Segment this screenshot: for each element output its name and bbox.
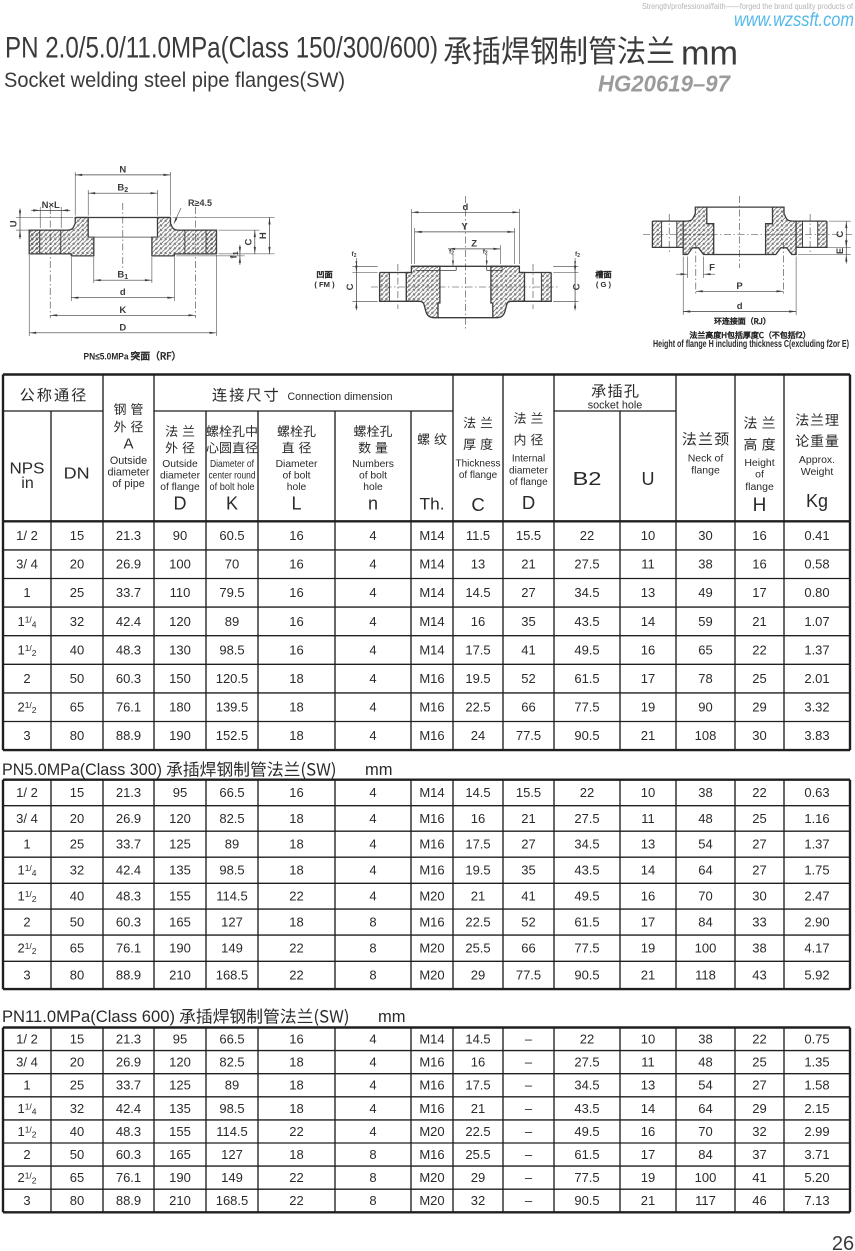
svg-text:4: 4 <box>369 1078 376 1093</box>
svg-text:5.92: 5.92 <box>804 968 829 983</box>
svg-text:90: 90 <box>698 700 712 715</box>
svg-text:25: 25 <box>70 1078 84 1093</box>
svg-text:26.9: 26.9 <box>116 1055 141 1070</box>
svg-text:1/ 2: 1/ 2 <box>16 528 38 543</box>
svg-text:center round: center round <box>209 471 256 482</box>
svg-text:K: K <box>119 305 126 316</box>
svg-text:22: 22 <box>289 1170 303 1185</box>
svg-text:14: 14 <box>641 863 655 878</box>
svg-text:22.5: 22.5 <box>465 1124 490 1139</box>
svg-text:29: 29 <box>752 700 766 715</box>
svg-text:4: 4 <box>369 557 376 572</box>
svg-text:14.5: 14.5 <box>465 785 490 800</box>
svg-text:125: 125 <box>169 1078 191 1093</box>
svg-text:19: 19 <box>641 941 655 956</box>
svg-text:17: 17 <box>641 915 655 930</box>
svg-text:2.01: 2.01 <box>804 671 829 686</box>
svg-text:DN: DN <box>64 466 90 483</box>
svg-text:M20: M20 <box>419 941 444 956</box>
svg-text:d: d <box>120 287 126 298</box>
svg-text:22: 22 <box>752 642 766 657</box>
svg-text:98.5: 98.5 <box>219 642 244 657</box>
svg-text:C: C <box>243 238 254 245</box>
svg-text:4: 4 <box>369 837 376 852</box>
svg-text:25: 25 <box>70 837 84 852</box>
svg-text:hole: hole <box>363 482 383 493</box>
svg-text:25: 25 <box>752 671 766 686</box>
svg-text:149: 149 <box>221 941 243 956</box>
svg-text:mm: mm <box>681 35 738 73</box>
svg-text:4: 4 <box>369 811 376 826</box>
svg-text:K: K <box>226 494 238 514</box>
svg-text:16: 16 <box>752 528 766 543</box>
svg-text:78: 78 <box>698 671 712 686</box>
svg-text:flange: flange <box>691 465 720 477</box>
svg-text:40: 40 <box>70 642 84 657</box>
svg-text:90.5: 90.5 <box>574 968 599 983</box>
svg-text:33.7: 33.7 <box>116 585 141 600</box>
svg-text:of flange: of flange <box>509 477 548 488</box>
svg-text:1/ 2: 1/ 2 <box>16 785 38 800</box>
svg-text:27: 27 <box>521 837 535 852</box>
svg-text:35: 35 <box>521 863 535 878</box>
svg-text:21.3: 21.3 <box>116 1032 141 1047</box>
svg-text:50: 50 <box>70 915 84 930</box>
svg-text:1.07: 1.07 <box>804 614 829 629</box>
svg-text:A: A <box>123 436 133 453</box>
svg-text:( FM ): ( FM ) <box>314 280 335 289</box>
svg-text:8: 8 <box>369 1170 376 1185</box>
svg-text:B2: B2 <box>573 469 602 489</box>
svg-text:N: N <box>119 164 126 175</box>
svg-text:17.5: 17.5 <box>465 1078 490 1093</box>
svg-text:60.3: 60.3 <box>116 671 141 686</box>
svg-text:38: 38 <box>698 1032 712 1047</box>
svg-text:11: 11 <box>641 1055 655 1070</box>
svg-text:114.5: 114.5 <box>216 1124 248 1139</box>
svg-text:155: 155 <box>169 889 191 904</box>
svg-text:70: 70 <box>698 1124 712 1139</box>
svg-text:4: 4 <box>369 785 376 800</box>
svg-text:35: 35 <box>521 614 535 629</box>
svg-text:95: 95 <box>173 1032 187 1047</box>
svg-text:of bolt hole: of bolt hole <box>210 482 255 493</box>
svg-text:21: 21 <box>641 1193 655 1208</box>
svg-text:M20: M20 <box>419 968 444 983</box>
svg-text:Outside: Outside <box>110 455 147 467</box>
svg-text:Thickness: Thickness <box>455 459 500 470</box>
svg-text:52: 52 <box>521 671 535 686</box>
svg-text:Y: Y <box>461 221 468 232</box>
svg-text:33.7: 33.7 <box>116 837 141 852</box>
svg-text:C: C <box>345 283 356 290</box>
svg-text:4: 4 <box>369 1032 376 1047</box>
svg-text:120: 120 <box>169 811 191 826</box>
svg-text:34.5: 34.5 <box>574 1078 599 1093</box>
svg-text:M16: M16 <box>419 700 444 715</box>
svg-text:10: 10 <box>641 785 655 800</box>
svg-text:76.1: 76.1 <box>116 1170 141 1185</box>
svg-text:66.5: 66.5 <box>219 1032 244 1047</box>
svg-text:16: 16 <box>289 1032 303 1047</box>
svg-text:48.3: 48.3 <box>116 642 141 657</box>
svg-text:in: in <box>21 475 33 492</box>
svg-text:11: 11 <box>641 811 655 826</box>
svg-text:98.5: 98.5 <box>219 863 244 878</box>
svg-text:135: 135 <box>169 1101 191 1116</box>
svg-text:65: 65 <box>698 642 712 657</box>
svg-text:65: 65 <box>70 941 84 956</box>
svg-text:17.5: 17.5 <box>465 837 490 852</box>
svg-text:PN11.0MPa(Class 600): PN11.0MPa(Class 600) <box>2 1008 175 1026</box>
svg-text:29: 29 <box>471 1170 485 1185</box>
svg-text:22: 22 <box>289 1193 303 1208</box>
svg-text:–: – <box>525 1055 533 1070</box>
svg-text:32: 32 <box>70 1101 84 1116</box>
svg-text:Diameter of: Diameter of <box>210 459 254 470</box>
svg-text:17: 17 <box>641 671 655 686</box>
svg-text:16: 16 <box>641 642 655 657</box>
svg-text:118: 118 <box>695 968 716 983</box>
svg-text:64: 64 <box>698 1101 712 1116</box>
svg-text:25: 25 <box>70 585 84 600</box>
svg-text:21: 21 <box>521 557 535 572</box>
svg-text:18: 18 <box>289 837 303 852</box>
svg-text:27: 27 <box>752 837 766 852</box>
svg-text:4: 4 <box>369 1101 376 1116</box>
svg-text:168.5: 168.5 <box>216 1193 249 1208</box>
svg-text:13: 13 <box>471 557 485 572</box>
svg-text:f2: f2 <box>575 251 580 259</box>
svg-text:C: C <box>835 231 846 238</box>
svg-text:Height of flange H including t: Height of flange H including thickness C… <box>653 339 849 350</box>
svg-text:27.5: 27.5 <box>574 1055 599 1070</box>
svg-text:89: 89 <box>225 614 239 629</box>
svg-text:Height: Height <box>744 457 774 469</box>
svg-text:8: 8 <box>369 941 376 956</box>
svg-text:Kg: Kg <box>806 491 828 511</box>
svg-text:M20: M20 <box>419 1170 444 1185</box>
svg-text:25: 25 <box>752 1055 766 1070</box>
svg-text:M20: M20 <box>419 1124 444 1139</box>
svg-text:4: 4 <box>369 1124 376 1139</box>
svg-text:1: 1 <box>23 1078 30 1093</box>
svg-text:90.5: 90.5 <box>574 728 599 743</box>
svg-text:M16: M16 <box>419 728 444 743</box>
svg-text:120: 120 <box>169 614 191 629</box>
svg-text:21: 21 <box>752 614 766 629</box>
svg-text:32: 32 <box>70 614 84 629</box>
svg-text:15: 15 <box>70 1032 84 1047</box>
svg-text:7.13: 7.13 <box>804 1193 829 1208</box>
svg-text:25.5: 25.5 <box>465 1147 490 1162</box>
svg-text:M16: M16 <box>419 671 444 686</box>
svg-text:22: 22 <box>289 889 303 904</box>
svg-text:79.5: 79.5 <box>219 585 244 600</box>
svg-text:42.4: 42.4 <box>116 614 141 629</box>
svg-text:–: – <box>525 1193 533 1208</box>
svg-text:d: d <box>462 202 468 213</box>
svg-text:60.5: 60.5 <box>219 528 244 543</box>
svg-text:190: 190 <box>169 941 191 956</box>
svg-text:–: – <box>525 1101 533 1116</box>
svg-text:43.5: 43.5 <box>574 614 599 629</box>
svg-text:66: 66 <box>521 941 535 956</box>
svg-text:42.4: 42.4 <box>116 1101 141 1116</box>
svg-text:125: 125 <box>169 837 191 852</box>
svg-text:77.5: 77.5 <box>574 1170 599 1185</box>
svg-text:21: 21 <box>471 889 485 904</box>
svg-text:M14: M14 <box>419 614 444 629</box>
svg-text:27.5: 27.5 <box>574 557 599 572</box>
svg-text:90.5: 90.5 <box>574 1193 599 1208</box>
svg-text:60.3: 60.3 <box>116 1147 141 1162</box>
svg-text:120: 120 <box>169 1055 191 1070</box>
svg-text:4: 4 <box>369 642 376 657</box>
svg-text:Internal: Internal <box>512 454 545 465</box>
svg-text:Weight: Weight <box>801 466 834 478</box>
svg-text:–: – <box>525 1078 533 1093</box>
svg-text:M16: M16 <box>419 811 444 826</box>
svg-text:15.5: 15.5 <box>516 528 541 543</box>
svg-text:mm: mm <box>378 1008 406 1026</box>
svg-text:17: 17 <box>641 1147 655 1162</box>
svg-text:16: 16 <box>641 1124 655 1139</box>
svg-text:M16: M16 <box>419 1078 444 1093</box>
svg-text:21: 21 <box>641 728 655 743</box>
svg-text:Th.: Th. <box>420 495 445 514</box>
svg-text:14: 14 <box>641 614 655 629</box>
svg-text:77.5: 77.5 <box>574 700 599 715</box>
svg-text:PN 2.0/5.0/11.0MPa(Class 150/3: PN 2.0/5.0/11.0MPa(Class 150/300/600) <box>5 32 438 65</box>
svg-text:64: 64 <box>698 863 712 878</box>
svg-text:2.90: 2.90 <box>804 915 829 930</box>
svg-text:0.80: 0.80 <box>804 585 829 600</box>
svg-text:16: 16 <box>289 785 303 800</box>
svg-text:84: 84 <box>698 1147 712 1162</box>
svg-text:16: 16 <box>289 528 303 543</box>
svg-text:50: 50 <box>70 1147 84 1162</box>
svg-text:flange: flange <box>745 481 774 493</box>
svg-text:8: 8 <box>369 1193 376 1208</box>
svg-text:diameter: diameter <box>160 471 201 482</box>
svg-text:E: E <box>835 248 846 254</box>
svg-text:of pipe: of pipe <box>112 478 144 490</box>
svg-text:–: – <box>525 1124 533 1139</box>
svg-text:19: 19 <box>641 700 655 715</box>
svg-text:M14: M14 <box>419 585 444 600</box>
svg-text:88.9: 88.9 <box>116 1193 141 1208</box>
svg-text:16: 16 <box>289 642 303 657</box>
svg-text:139.5: 139.5 <box>216 700 249 715</box>
svg-text:–: – <box>525 1147 533 1162</box>
svg-text:22: 22 <box>289 968 303 983</box>
svg-text:61.5: 61.5 <box>574 915 599 930</box>
svg-text:76.1: 76.1 <box>116 941 141 956</box>
svg-text:Numbers: Numbers <box>352 459 394 470</box>
svg-text:10: 10 <box>641 528 655 543</box>
svg-text:2.47: 2.47 <box>804 889 829 904</box>
svg-text:41: 41 <box>752 1170 766 1185</box>
svg-text:80: 80 <box>70 1193 84 1208</box>
svg-text:29: 29 <box>471 968 485 983</box>
svg-text:34.5: 34.5 <box>574 837 599 852</box>
svg-text:( G ): ( G ) <box>596 280 612 289</box>
svg-text:210: 210 <box>169 968 191 983</box>
svg-text:21.3: 21.3 <box>116 785 141 800</box>
svg-text:U: U <box>9 220 20 227</box>
svg-text:18: 18 <box>289 1078 303 1093</box>
svg-text:D: D <box>119 322 126 333</box>
svg-text:22: 22 <box>580 528 594 543</box>
svg-text:M16: M16 <box>419 1147 444 1162</box>
svg-text:M16: M16 <box>419 1055 444 1070</box>
svg-text:14.5: 14.5 <box>465 585 490 600</box>
svg-text:13: 13 <box>641 1078 655 1093</box>
svg-text:127: 127 <box>221 915 243 930</box>
svg-text:3.32: 3.32 <box>804 700 829 715</box>
svg-text:of bolt: of bolt <box>359 471 387 482</box>
svg-text:18: 18 <box>289 728 303 743</box>
svg-text:48: 48 <box>698 811 712 826</box>
svg-text:D: D <box>174 494 187 514</box>
svg-text:2: 2 <box>23 671 30 686</box>
svg-text:108: 108 <box>695 728 717 743</box>
svg-text:61.5: 61.5 <box>574 671 599 686</box>
svg-text:149: 149 <box>221 1170 243 1185</box>
svg-text:50: 50 <box>70 671 84 686</box>
svg-text:43.5: 43.5 <box>574 1101 599 1116</box>
svg-text:M14: M14 <box>419 557 444 572</box>
svg-text:Neck of: Neck of <box>688 453 724 465</box>
svg-text:3: 3 <box>23 728 30 743</box>
svg-text:34.5: 34.5 <box>574 585 599 600</box>
svg-text:2.15: 2.15 <box>804 1101 829 1116</box>
svg-text:18: 18 <box>289 671 303 686</box>
svg-text:16: 16 <box>289 585 303 600</box>
svg-text:49: 49 <box>698 585 712 600</box>
svg-text:22.5: 22.5 <box>465 915 490 930</box>
svg-text:82.5: 82.5 <box>219 1055 244 1070</box>
svg-text:77.5: 77.5 <box>516 728 541 743</box>
svg-text:100: 100 <box>169 557 191 572</box>
svg-text:C: C <box>572 283 583 290</box>
svg-text:150: 150 <box>169 671 191 686</box>
svg-text:27: 27 <box>521 585 535 600</box>
svg-text:C: C <box>471 494 484 515</box>
svg-text:180: 180 <box>169 700 191 715</box>
svg-text:3/ 4: 3/ 4 <box>16 811 38 826</box>
svg-text:11.5: 11.5 <box>466 528 490 543</box>
svg-text:19: 19 <box>641 1170 655 1185</box>
svg-text:30: 30 <box>752 889 766 904</box>
svg-text:110: 110 <box>170 585 191 600</box>
svg-text:21: 21 <box>641 968 655 983</box>
svg-text:Connection dimension: Connection dimension <box>288 391 393 403</box>
svg-text:14: 14 <box>641 1101 655 1116</box>
svg-text:socket hole: socket hole <box>588 400 643 412</box>
svg-text:59: 59 <box>698 614 712 629</box>
svg-text:155: 155 <box>169 1124 191 1139</box>
svg-text:43: 43 <box>752 968 766 983</box>
svg-text:49.5: 49.5 <box>574 1124 599 1139</box>
svg-text:48: 48 <box>698 1055 712 1070</box>
svg-text:29: 29 <box>752 1101 766 1116</box>
svg-text:P: P <box>736 281 743 292</box>
svg-text:22: 22 <box>289 941 303 956</box>
svg-text:41: 41 <box>521 642 535 657</box>
svg-text:0.75: 0.75 <box>804 1032 829 1047</box>
svg-text:41: 41 <box>521 889 535 904</box>
svg-text:0.63: 0.63 <box>804 785 829 800</box>
svg-text:4: 4 <box>369 728 376 743</box>
svg-text:13: 13 <box>641 837 655 852</box>
svg-text:Socket welding steel pipe flan: Socket welding steel pipe flanges(SW) <box>4 69 345 92</box>
svg-text:Approx.: Approx. <box>799 454 835 466</box>
svg-text:21.3: 21.3 <box>116 528 141 543</box>
svg-text:26.9: 26.9 <box>116 557 141 572</box>
svg-text:diameter: diameter <box>509 466 549 477</box>
svg-text:2: 2 <box>23 1147 30 1162</box>
svg-text:26: 26 <box>832 1233 854 1251</box>
svg-text:PN5.0MPa(Class 300): PN5.0MPa(Class 300) <box>2 761 162 779</box>
svg-text:18: 18 <box>289 1101 303 1116</box>
svg-text:4: 4 <box>369 863 376 878</box>
svg-text:22: 22 <box>752 785 766 800</box>
svg-text:16: 16 <box>471 811 485 826</box>
svg-text:66: 66 <box>521 700 535 715</box>
svg-text:M16: M16 <box>419 837 444 852</box>
svg-text:135: 135 <box>169 863 191 878</box>
svg-text:15: 15 <box>70 785 84 800</box>
svg-text:L: L <box>291 494 301 514</box>
svg-text:54: 54 <box>698 1078 712 1093</box>
svg-text:18: 18 <box>289 1055 303 1070</box>
svg-text:88.9: 88.9 <box>116 728 141 743</box>
svg-text:49.5: 49.5 <box>574 889 599 904</box>
svg-text:5.20: 5.20 <box>804 1170 829 1185</box>
svg-text:82.5: 82.5 <box>219 811 244 826</box>
svg-text:190: 190 <box>169 728 191 743</box>
svg-text:8: 8 <box>369 968 376 983</box>
svg-text:mm: mm <box>365 761 393 779</box>
svg-text:4: 4 <box>369 671 376 686</box>
svg-text:d: d <box>737 301 743 312</box>
svg-text:0.58: 0.58 <box>804 557 829 572</box>
svg-text:100: 100 <box>695 941 717 956</box>
svg-text:65: 65 <box>70 1170 84 1185</box>
svg-text:Outside: Outside <box>162 459 198 470</box>
svg-text:N×L: N×L <box>42 200 60 211</box>
svg-text:0.41: 0.41 <box>804 528 829 543</box>
svg-text:27: 27 <box>752 1078 766 1093</box>
svg-text:17.5: 17.5 <box>465 642 490 657</box>
svg-text:52: 52 <box>521 915 535 930</box>
svg-text:H: H <box>753 495 767 516</box>
svg-text:24: 24 <box>471 728 485 743</box>
svg-text:27: 27 <box>752 863 766 878</box>
svg-text:n: n <box>368 494 378 514</box>
svg-text:16: 16 <box>289 614 303 629</box>
svg-text:M14: M14 <box>419 785 444 800</box>
svg-text:89: 89 <box>225 837 239 852</box>
svg-text:1.37: 1.37 <box>804 837 829 852</box>
svg-text:1.75: 1.75 <box>804 863 829 878</box>
svg-text:1.58: 1.58 <box>804 1078 829 1093</box>
svg-text:76.1: 76.1 <box>116 700 141 715</box>
svg-text:R≥4.5: R≥4.5 <box>188 198 212 208</box>
svg-text:19.5: 19.5 <box>465 863 490 878</box>
